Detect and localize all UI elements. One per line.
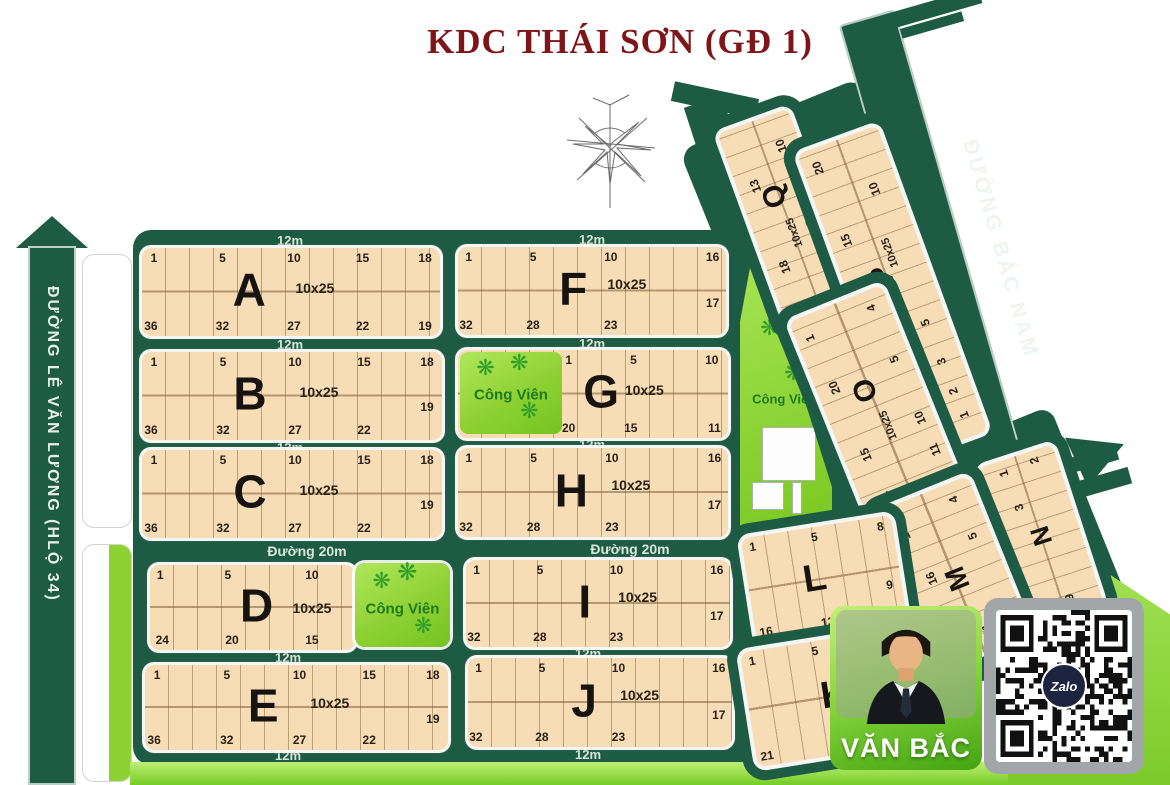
plot-number: 10 — [604, 250, 617, 264]
plot-number: 1 — [151, 251, 158, 265]
qr-card: Zalo — [984, 598, 1144, 774]
plot-number: 10 — [772, 137, 790, 154]
plot-number: 19 — [426, 712, 439, 726]
plot-number: 1 — [997, 468, 1012, 479]
road-12m-label: 12m — [579, 336, 605, 351]
plot-number: 15 — [356, 251, 369, 265]
plot-number: 4 — [864, 303, 879, 314]
clover-icon: ❋ — [372, 570, 390, 592]
zalo-logo: Zalo — [1041, 663, 1087, 709]
road-le-van-luong: ĐƯỜNG LÊ VĂN LƯƠNG (HLỘ 34) — [28, 246, 76, 785]
plot-number: 11 — [708, 421, 721, 435]
block-B: 1 5 10 15 18 36 32 27 22 19 B 10x25 — [142, 352, 442, 440]
block-I: 1 5 10 16 32 28 23 17 I 10x25 — [466, 560, 730, 647]
plot-number: 1 — [802, 332, 817, 343]
block-A: 1 5 10 15 18 36 32 27 22 19 A 10x25 — [142, 248, 440, 336]
block-E: 1 5 10 15 18 36 32 27 22 19 E 10x25 — [145, 665, 448, 750]
block-letter: H — [555, 467, 588, 513]
plot-number: 10 — [287, 251, 300, 265]
plot-number: 32 — [469, 730, 482, 744]
plot-size: 10x25 — [877, 409, 900, 442]
plot-number: 20 — [225, 633, 238, 647]
plot-number: 15 — [357, 355, 370, 369]
plot-number: 32 — [467, 630, 480, 644]
road-12m-label: 12m — [277, 337, 303, 352]
plot-number: 36 — [144, 521, 157, 535]
plot-number: 23 — [605, 520, 618, 534]
plot-size: 10x25 — [625, 382, 664, 398]
plot-number: 28 — [535, 730, 548, 744]
plot-number: 5 — [886, 353, 901, 364]
block-letter: J — [571, 677, 597, 723]
roadside-strip-green — [82, 544, 132, 782]
plot-number: 5 — [530, 451, 537, 465]
plot-number: 5 — [225, 568, 232, 582]
clover-icon: ❋ — [414, 615, 432, 637]
plot-number: 1 — [794, 299, 809, 310]
plot-number: 32 — [216, 423, 229, 437]
plot-number: 10 — [610, 563, 623, 577]
plot-number: 15 — [357, 453, 370, 467]
block-letter: F — [559, 266, 587, 312]
plot-number: 27 — [287, 319, 300, 333]
park-g: ❋ ❋ ❋ Công Viên — [460, 352, 562, 434]
plot-number: 22 — [356, 319, 369, 333]
plot-number: 1 — [465, 451, 472, 465]
left-road-arrow-icon — [16, 216, 88, 248]
block-G: ❋ ❋ ❋ Công Viên 1 5 10 20 15 11 G 10x25 — [458, 350, 728, 438]
plot-number: 5 — [220, 355, 227, 369]
plot-number: 4 — [821, 263, 836, 274]
plot-number: 32 — [216, 319, 229, 333]
plot-number: 1 — [748, 654, 757, 669]
plot-number: 10 — [612, 661, 625, 675]
plot-number: 16 — [758, 624, 773, 640]
plot-number: 1 — [565, 353, 572, 367]
plot-number: 1 — [151, 453, 158, 467]
block-letter: M — [940, 562, 975, 594]
compass-rose-icon — [555, 88, 665, 218]
plot-number: 17 — [706, 296, 719, 310]
plot-number: 20 — [826, 379, 844, 397]
plot-number: 2 — [1027, 455, 1042, 466]
plot-number: 16 — [922, 569, 940, 587]
block-letter: C — [233, 469, 266, 515]
plot-number: 18 — [420, 453, 433, 467]
plot-number: 36 — [147, 733, 160, 747]
block-letter: L — [800, 558, 829, 599]
plot-number: 16 — [708, 451, 721, 465]
page-title: KDC THÁI SƠN (GĐ 1) — [370, 22, 870, 62]
plot-number: 11 — [926, 441, 944, 458]
plot-number: 8 — [876, 519, 885, 534]
subdivision-map: KDC THÁI SƠN (GĐ 1) ĐƯỜNG LÊ VĂN LƯƠNG (… — [0, 0, 1170, 785]
park-label: Công Viên — [366, 601, 440, 618]
road-12m-label: 12m — [275, 748, 301, 763]
plot-number: 19 — [420, 400, 433, 414]
plot-number: 5 — [539, 661, 546, 675]
plot-number: 1 — [475, 661, 482, 675]
block-letter: I — [578, 578, 591, 624]
road-12m-label: 12m — [579, 232, 605, 247]
block-J: 1 5 10 16 32 28 23 17 J 10x25 — [468, 658, 732, 747]
plot-number: 16 — [706, 250, 719, 264]
plot-number: 28 — [526, 318, 539, 332]
clover-icon: ❋ — [510, 352, 528, 374]
road-12m-label: 12m — [275, 650, 301, 665]
plot-number: 17 — [712, 708, 725, 722]
plot-number: 1 — [157, 568, 164, 582]
plot-number: 5 — [810, 530, 819, 545]
block-letter: A — [233, 267, 266, 313]
road-20m-label: Đường 20m — [267, 543, 346, 559]
plot-size: 10x25 — [295, 280, 334, 296]
plot-number: 5 — [630, 353, 637, 367]
clover-icon: ❋ — [760, 317, 778, 339]
plot-size: 10x25 — [310, 695, 349, 711]
agent-name: VĂN BẮC — [830, 733, 982, 764]
plot-number: 3 — [1011, 503, 1026, 514]
plot-number: 20 — [809, 159, 827, 176]
plot-number: 20 — [562, 421, 575, 435]
road-20m-label: Đường 20m — [590, 541, 669, 557]
plot-number: 5 — [223, 668, 230, 682]
plot-number: 22 — [357, 521, 370, 535]
plot-number: 5 — [530, 250, 537, 264]
plot-number: 5 — [802, 217, 817, 228]
grass-strip — [109, 545, 131, 781]
plot-number: 10 — [705, 353, 718, 367]
plot-number: 15 — [857, 446, 875, 464]
plot-number: 5 — [219, 251, 226, 265]
plot-number: 18 — [420, 355, 433, 369]
plot-number: 4 — [946, 494, 961, 505]
plot-number: 32 — [216, 521, 229, 535]
plot-size: 10x25 — [300, 482, 339, 498]
plot-number: 32 — [220, 733, 233, 747]
plot-number: 23 — [612, 730, 625, 744]
block-letter: O — [847, 374, 884, 407]
building-footprint — [792, 482, 802, 514]
plot-size: 10x25 — [618, 589, 657, 605]
agent-photo — [850, 610, 962, 726]
clover-icon: ❋ — [520, 400, 538, 422]
plot-number: 1 — [154, 668, 161, 682]
plot-size: 10x25 — [300, 384, 339, 400]
plot-number: 15 — [363, 668, 376, 682]
plot-number: 10 — [305, 568, 318, 582]
plot-size: 10x25 — [292, 600, 331, 616]
plot-number: 5 — [917, 317, 932, 328]
plot-number: 1 — [957, 410, 972, 421]
block-letter: N — [1026, 523, 1057, 549]
plot-number: 15 — [305, 633, 318, 647]
plot-number: 9 — [885, 578, 894, 593]
plot-number: 10 — [866, 180, 884, 197]
block-letter: E — [248, 682, 279, 728]
plot-number: 3 — [933, 356, 948, 367]
plot-number: 15 — [624, 421, 637, 435]
plot-number: 36 — [144, 423, 157, 437]
plot-number: 36 — [144, 319, 157, 333]
block-letter: D — [240, 582, 273, 628]
plot-number: 19 — [418, 319, 431, 333]
road-12m-label: 12m — [277, 233, 303, 248]
plot-number: 19 — [420, 498, 433, 512]
zalo-logo-label: Zalo — [1051, 679, 1078, 694]
plot-number: 17 — [708, 498, 721, 512]
plot-number: 21 — [759, 748, 774, 764]
plot-number: 22 — [363, 733, 376, 747]
park-label: Công Viên — [474, 386, 548, 403]
plot-number: 10 — [293, 668, 306, 682]
plot-number: 23 — [610, 630, 623, 644]
plot-number: 16 — [710, 563, 723, 577]
plot-number: 15 — [837, 231, 855, 248]
plot-number: 2 — [946, 386, 961, 397]
block-letter: G — [583, 369, 619, 415]
clover-icon: ❋ — [397, 561, 417, 585]
block-H: 1 5 10 16 32 28 23 17 H 10x25 — [458, 448, 728, 537]
plot-number: 18 — [776, 258, 794, 275]
plot-number: 1 — [465, 250, 472, 264]
plot-number: 10 — [911, 409, 929, 427]
plot-number: 10 — [288, 453, 301, 467]
plot-size: 10x25 — [879, 235, 901, 268]
block-F: 1 5 10 16 32 28 23 17 F 10x25 — [458, 247, 726, 335]
plot-number: 24 — [156, 633, 169, 647]
plot-number: 18 — [418, 251, 431, 265]
plot-number: 17 — [710, 609, 723, 623]
qr-white-area: Zalo — [996, 610, 1132, 762]
plot-number: 27 — [288, 521, 301, 535]
plot-number: 10 — [605, 451, 618, 465]
plot-size: 10x25 — [611, 477, 650, 493]
plot-number: 10 — [288, 355, 301, 369]
road-12m-label: 12m — [575, 747, 601, 762]
plot-number: 1 — [151, 355, 158, 369]
road-le-van-luong-label: ĐƯỜNG LÊ VĂN LƯƠNG (HLỘ 34) — [43, 286, 61, 602]
block-letter: B — [233, 371, 266, 417]
plot-number: 5 — [811, 644, 820, 659]
plot-number: 28 — [527, 520, 540, 534]
park-d: ❋ ❋ ❋ Công Viên — [355, 563, 450, 647]
plot-number: 22 — [357, 423, 370, 437]
plot-number: 32 — [459, 520, 472, 534]
plot-number: 28 — [533, 630, 546, 644]
roadside-strip — [82, 254, 132, 528]
agent-card: VĂN BẮC — [830, 606, 982, 770]
plot-number: 27 — [293, 733, 306, 747]
plot-size: 10x25 — [620, 687, 659, 703]
plot-number: 1 — [748, 539, 757, 554]
plot-number: 5 — [220, 453, 227, 467]
plot-number: 32 — [459, 318, 472, 332]
plot-number: 5 — [537, 563, 544, 577]
clover-icon: ❋ — [476, 357, 494, 379]
block-C: 1 5 10 15 18 36 32 27 22 19 C 10x25 — [142, 450, 442, 538]
plot-number: 23 — [604, 318, 617, 332]
plot-size: 10x25 — [607, 276, 646, 292]
plot-number: 18 — [426, 668, 439, 682]
plot-number: 27 — [288, 423, 301, 437]
building-footprint — [762, 427, 816, 481]
plot-number: 1 — [473, 563, 480, 577]
plot-number: 1 — [898, 531, 913, 542]
plot-number: 16 — [712, 661, 725, 675]
plot-number: 5 — [965, 530, 980, 541]
block-D: 1 5 10 24 20 15 D 10x25 — [150, 565, 355, 650]
building-footprint — [752, 482, 784, 510]
